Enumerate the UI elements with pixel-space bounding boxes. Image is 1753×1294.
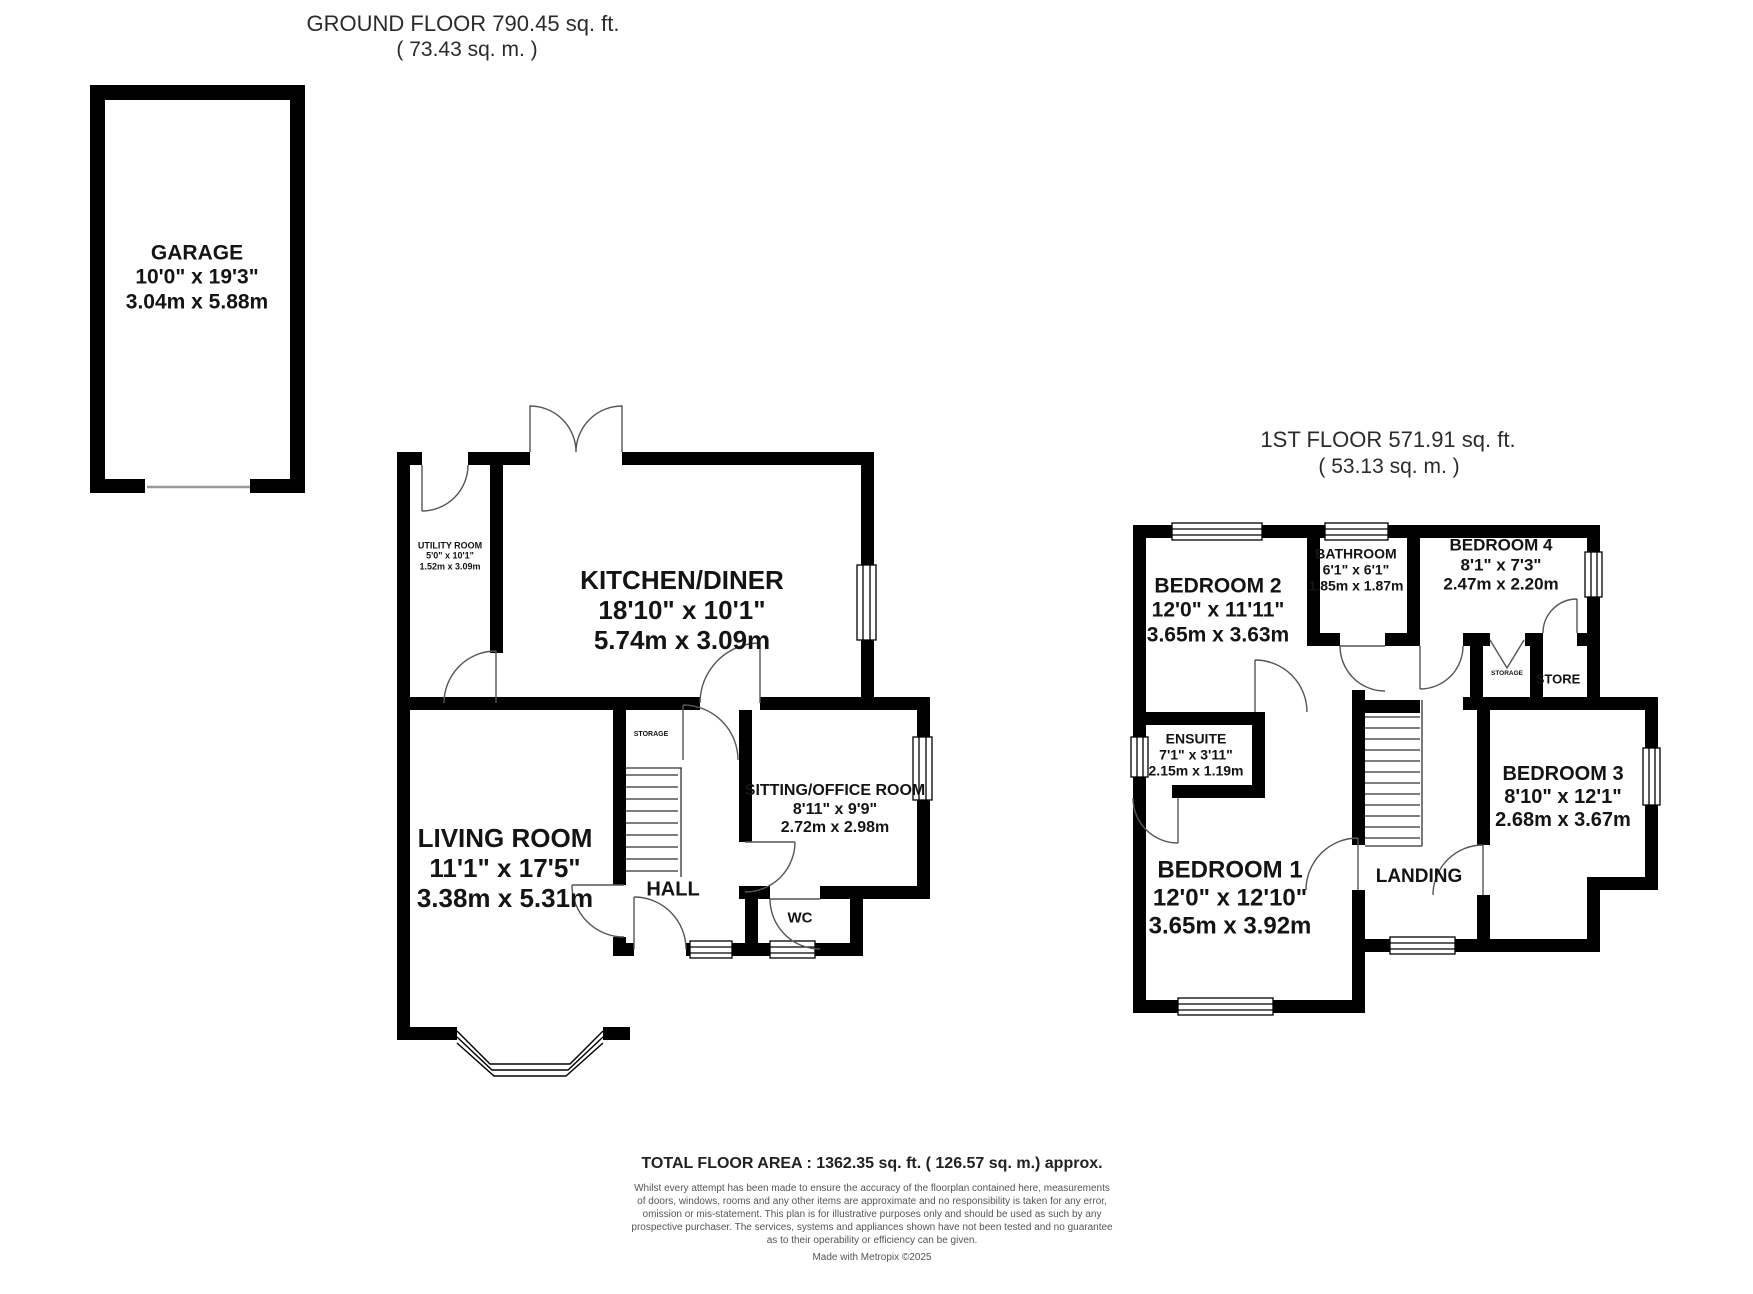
room-name: BEDROOM 3 — [1495, 763, 1631, 786]
room-label-bedroom4: BEDROOM 4 8'1" x 7'3" 2.47m x 2.20m — [1443, 535, 1558, 594]
room-name: BEDROOM 4 — [1443, 535, 1558, 555]
room-dims-imperial: 10'0" x 19'3" — [126, 266, 268, 290]
room-dims-metric: 5.74m x 3.09m — [580, 625, 784, 655]
room-label-ensuite: ENSUITE 7'1" x 3'11" 2.15m x 1.19m — [1149, 731, 1244, 780]
disclaimer-line: Whilst every attempt has been made to en… — [631, 1182, 1112, 1195]
room-dims-metric: 3.65m x 3.92m — [1149, 912, 1312, 940]
room-dims-imperial: 18'10" x 10'1" — [580, 595, 784, 625]
first-floor-stairs — [1365, 700, 1422, 846]
room-name: ENSUITE — [1149, 731, 1244, 747]
room-dims-imperial: 8'1" x 7'3" — [1443, 555, 1558, 575]
room-dims-imperial: 12'0" x 12'10" — [1149, 884, 1312, 912]
disclaimer-line: prospective purchaser. The services, sys… — [631, 1221, 1112, 1234]
room-dims-metric: 2.15m x 1.19m — [1149, 763, 1244, 779]
room-dims-imperial: 6'1" x 6'1" — [1309, 562, 1404, 578]
metropix-credit: Made with Metropix ©2025 — [812, 1252, 931, 1263]
room-dims-metric: 1.85m x 1.87m — [1309, 578, 1404, 594]
room-dims-metric: 3.04m x 5.88m — [126, 290, 268, 314]
room-name: LIVING ROOM — [417, 823, 593, 853]
first-floor-title: 1ST FLOOR 571.91 sq. ft. — [1260, 427, 1515, 453]
floorplan-drawing — [0, 0, 1753, 1294]
room-name: SITTING/OFFICE ROOM — [745, 782, 925, 801]
room-name: BATHROOM — [1309, 546, 1404, 562]
room-name: BEDROOM 1 — [1149, 856, 1312, 884]
room-label-sitting: SITTING/OFFICE ROOM 8'11" x 9'9" 2.72m x… — [745, 782, 925, 838]
ground-floor-subtitle: ( 73.43 sq. m. ) — [396, 38, 537, 62]
room-label-garage: GARAGE 10'0" x 19'3" 3.04m x 5.88m — [126, 241, 268, 314]
room-label-storage-ground: STORAGE — [634, 731, 669, 739]
room-label-storage-first: STORAGE — [1491, 670, 1523, 678]
room-label-living: LIVING ROOM 11'1" x 17'5" 3.38m x 5.31m — [417, 823, 593, 913]
room-label-bedroom3: BEDROOM 3 8'10" x 12'1" 2.68m x 3.67m — [1495, 763, 1631, 833]
bay-window — [457, 1031, 603, 1076]
room-dims-imperial: 8'10" x 12'1" — [1495, 786, 1631, 809]
first-floor-subtitle: ( 53.13 sq. m. ) — [1318, 455, 1459, 479]
room-dims-imperial: 8'11" x 9'9" — [745, 801, 925, 820]
total-floor-area: TOTAL FLOOR AREA : 1362.35 sq. ft. ( 126… — [641, 1155, 1102, 1173]
room-name: BEDROOM 2 — [1147, 574, 1289, 598]
room-dims-metric: 2.72m x 2.98m — [745, 819, 925, 838]
room-label-utility: UTILITY ROOM 5'0" x 10'1" 1.52m x 3.09m — [418, 540, 482, 571]
room-label-landing: LANDING — [1376, 866, 1463, 888]
room-label-bathroom: BATHROOM 6'1" x 6'1" 1.85m x 1.87m — [1309, 546, 1404, 595]
room-label-store: STORE — [1536, 671, 1581, 686]
room-dims-metric: 2.47m x 2.20m — [1443, 575, 1558, 595]
room-name: KITCHEN/DINER — [580, 565, 784, 595]
room-dims-metric: 3.65m x 3.63m — [1147, 623, 1289, 647]
room-label-bedroom1: BEDROOM 1 12'0" x 12'10" 3.65m x 3.92m — [1149, 856, 1312, 939]
floorplan-page: { "ground_floor": { "title": "GROUND FLO… — [0, 0, 1753, 1294]
room-dims-imperial: 12'0" x 11'11" — [1147, 599, 1289, 623]
disclaimer-line: omission or mis-statement. This plan is … — [631, 1208, 1112, 1221]
room-label-bedroom2: BEDROOM 2 12'0" x 11'11" 3.65m x 3.63m — [1147, 574, 1289, 647]
room-dims-metric: 2.68m x 3.67m — [1495, 810, 1631, 833]
room-name: UTILITY ROOM — [418, 540, 482, 550]
room-dims-metric: 3.38m x 5.31m — [417, 883, 593, 913]
room-label-hall: HALL — [646, 878, 699, 901]
room-dims-imperial: 11'1" x 17'5" — [417, 853, 593, 883]
room-dims-imperial: 7'1" x 3'11" — [1149, 747, 1244, 763]
disclaimer-text: Whilst every attempt has been made to en… — [631, 1182, 1112, 1247]
room-label-kitchen: KITCHEN/DINER 18'10" x 10'1" 5.74m x 3.0… — [580, 565, 784, 655]
disclaimer-line: as to their operability or efficiency ca… — [631, 1234, 1112, 1247]
room-dims-imperial: 5'0" x 10'1" — [418, 551, 482, 561]
room-label-wc: WC — [788, 909, 813, 926]
room-name: GARAGE — [126, 241, 268, 265]
room-dims-metric: 1.52m x 3.09m — [418, 561, 482, 571]
disclaimer-line: of doors, windows, rooms and any other i… — [631, 1195, 1112, 1208]
ground-floor-title: GROUND FLOOR 790.45 sq. ft. — [307, 11, 620, 37]
ground-floor-stairs — [626, 768, 682, 877]
